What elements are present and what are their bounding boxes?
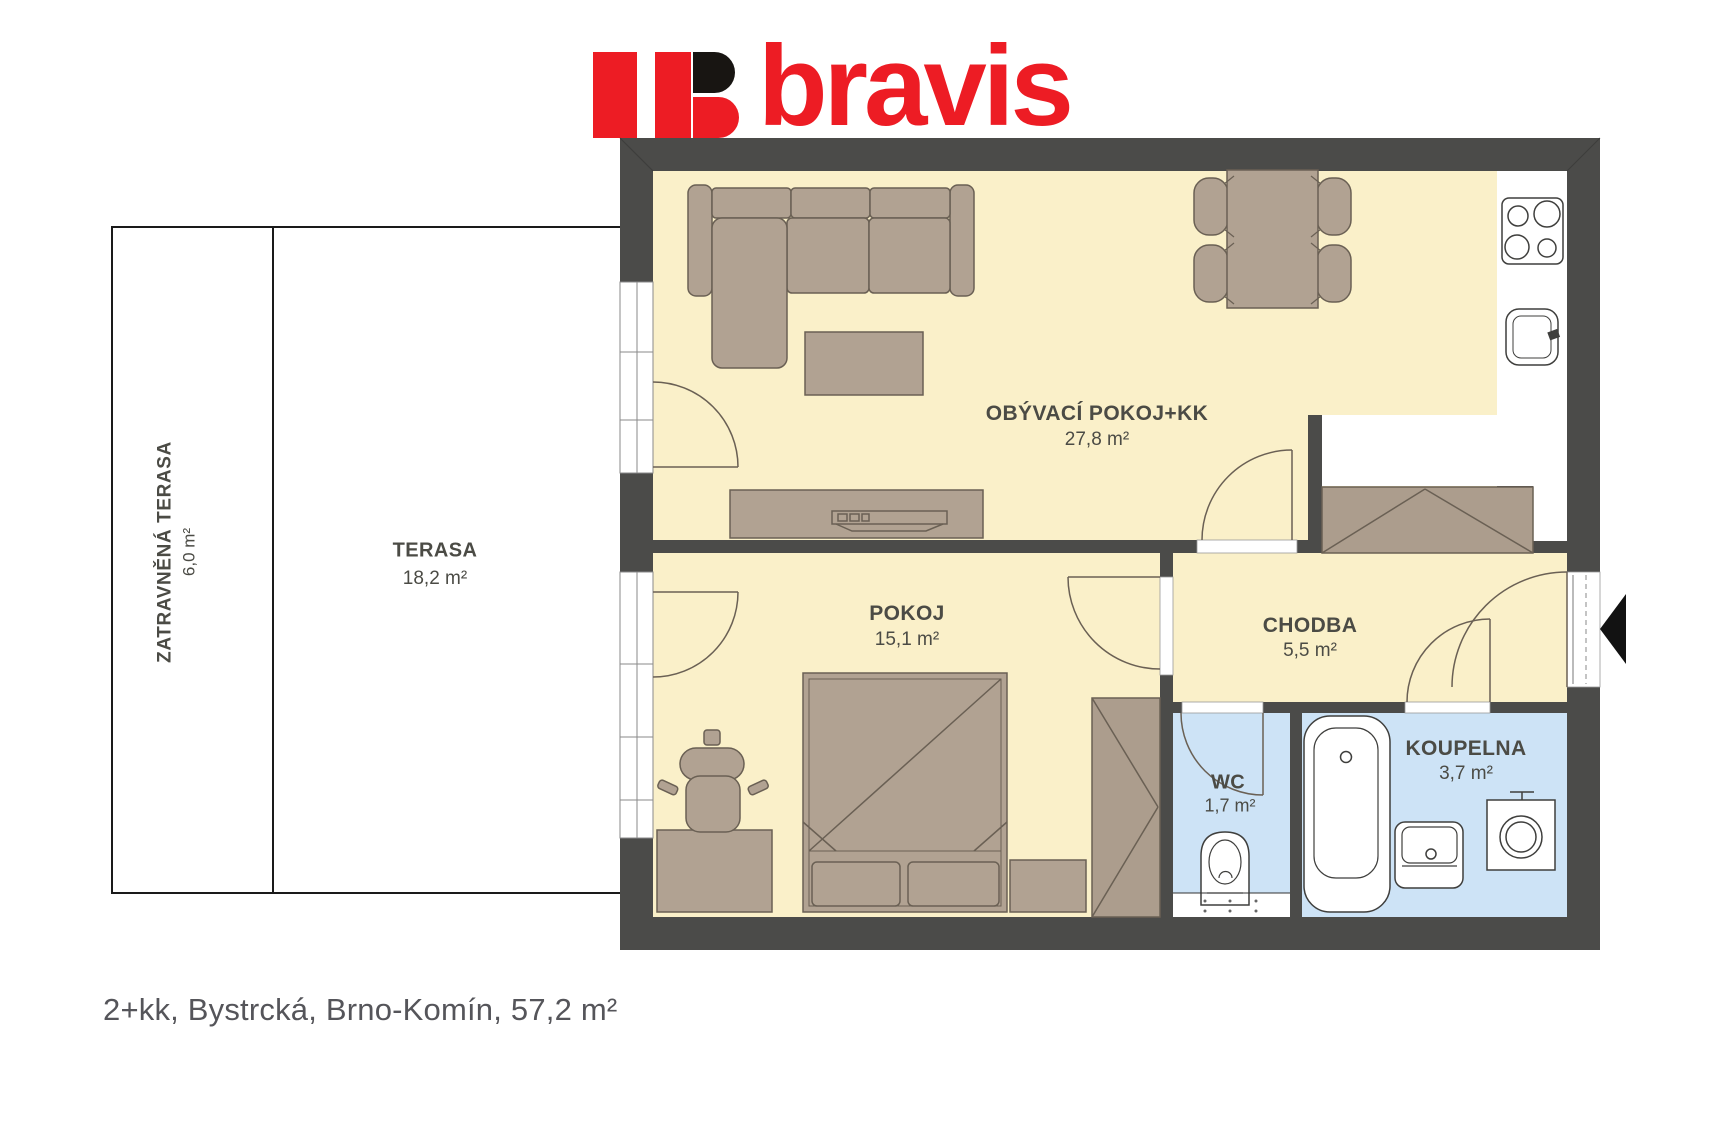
kitchen-sink <box>1506 309 1559 365</box>
grass-terrace-area: 6,0 m² <box>180 441 200 663</box>
stove <box>1502 198 1563 264</box>
room-area-bedroom: 15,1 m² <box>875 629 939 651</box>
room-label-living: OBÝVACÍ POKOJ+KK <box>986 402 1208 426</box>
room-label-hall: CHODBA <box>1263 614 1358 638</box>
floor-plan <box>0 0 1710 1133</box>
wardrobe-bedroom <box>1092 698 1160 917</box>
kitchen-counter-bottom <box>1322 415 1567 486</box>
dining-chair <box>1317 245 1351 302</box>
room-area-wc: 1,7 m² <box>1204 796 1255 817</box>
washing-machine <box>1487 792 1555 870</box>
bed <box>803 673 1007 912</box>
caption-text: 2+kk, Bystrcká, Brno-Komín, 57,2 m² <box>103 992 617 1028</box>
room-area-bathroom: 3,7 m² <box>1439 763 1493 785</box>
room-label-terrace: TERASA <box>393 540 478 563</box>
bedroom-window <box>620 572 653 838</box>
living-room-window <box>620 282 653 473</box>
dining-chair <box>1194 178 1228 235</box>
room-label-grass-terrace: ZATRAVNĚNÁ TERASA 6,0 m² <box>155 441 200 663</box>
nightstand <box>1010 860 1086 912</box>
room-area-hall: 5,5 m² <box>1283 640 1337 662</box>
desk <box>657 830 772 912</box>
wardrobe-hall <box>1322 487 1533 553</box>
coffee-table <box>805 332 923 395</box>
entrance-arrow-icon <box>1600 594 1626 664</box>
room-label-bathroom: KOUPELNA <box>1405 737 1526 761</box>
entrance <box>1567 572 1626 687</box>
pillow <box>812 862 900 906</box>
dining-chair <box>1194 245 1228 302</box>
page: bravis <box>0 0 1710 1133</box>
toilet <box>1201 832 1249 905</box>
bathroom-sink <box>1395 822 1463 888</box>
bathtub <box>1304 716 1390 912</box>
room-label-wc: WC <box>1211 772 1245 795</box>
room-area-terrace: 18,2 m² <box>403 568 467 590</box>
tv-stand <box>730 490 983 538</box>
dining-table <box>1227 170 1318 308</box>
pillow <box>908 862 999 906</box>
room-area-living: 27,8 m² <box>1065 429 1129 451</box>
entry-niche <box>1533 486 1567 541</box>
dining-chair <box>1317 178 1351 235</box>
grass-terrace-name: ZATRAVNĚNÁ TERASA <box>155 441 177 663</box>
room-hall-floor <box>1173 553 1567 702</box>
room-label-bedroom: POKOJ <box>869 602 945 626</box>
